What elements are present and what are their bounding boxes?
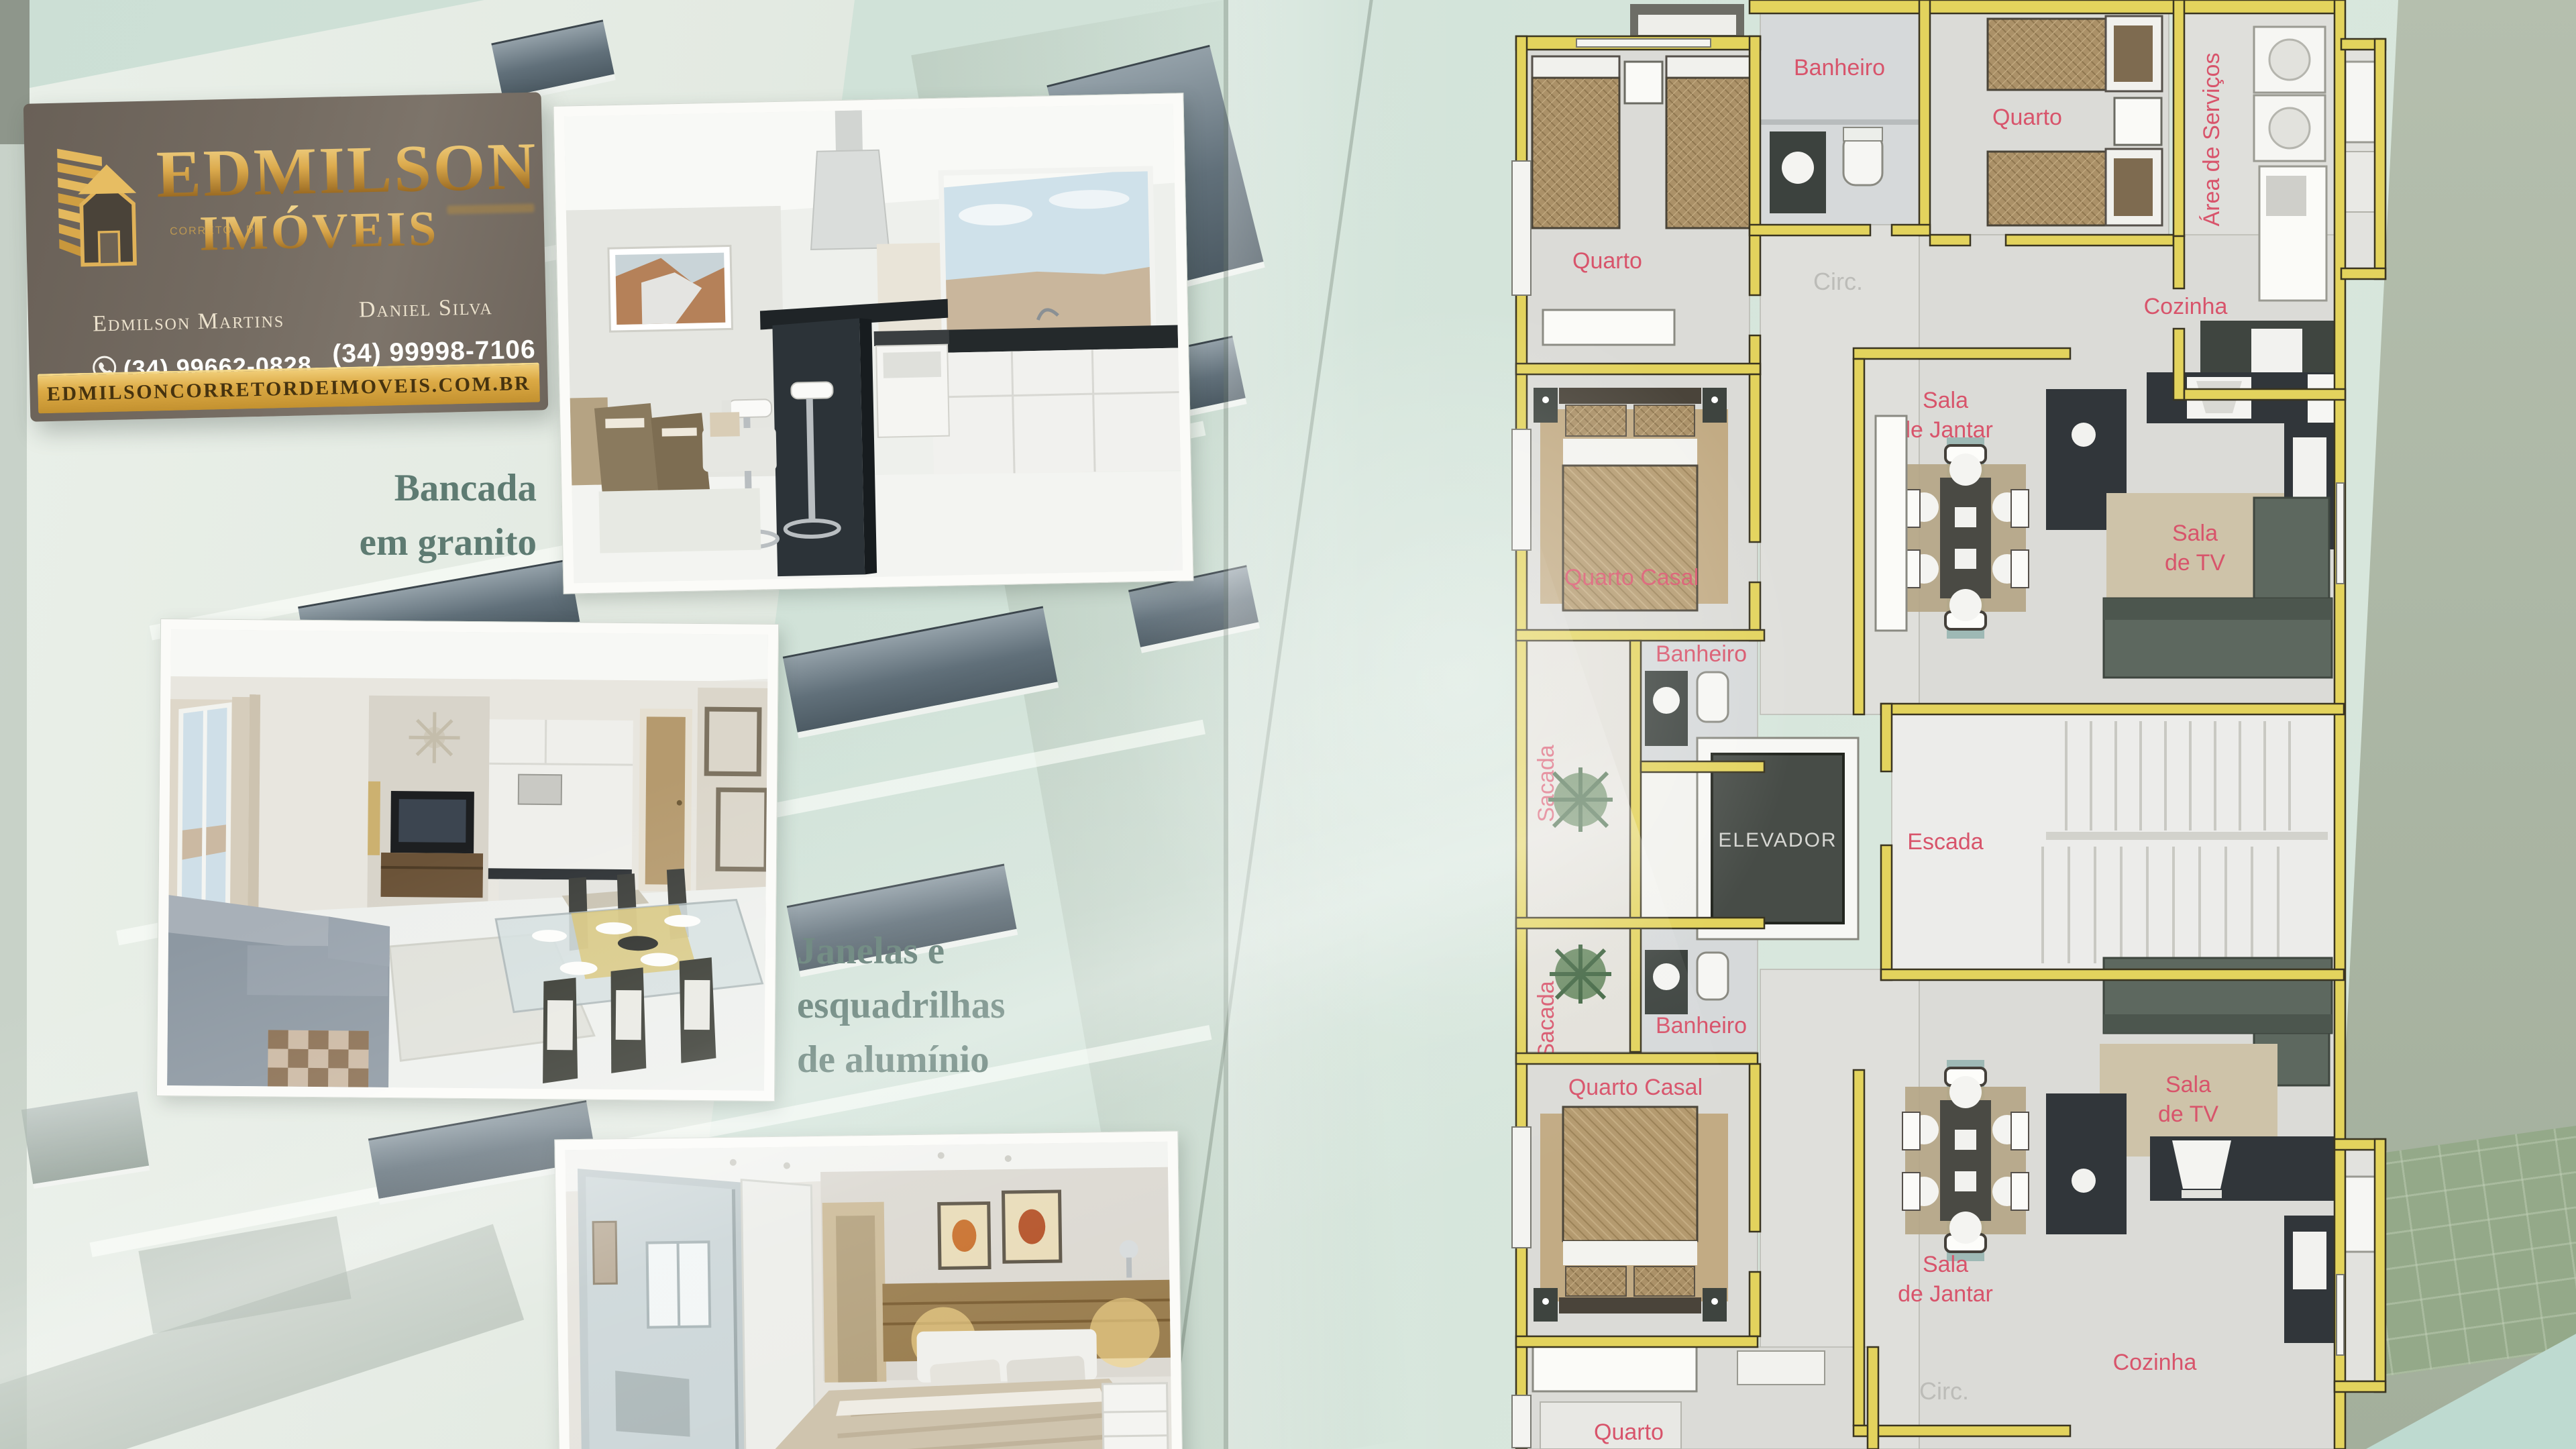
nightstand	[1625, 62, 1662, 103]
room-label: Quarto	[1572, 248, 1642, 274]
room-label: Sala	[1923, 1252, 1968, 1277]
single-bed	[1988, 149, 2162, 225]
kitchen-photo	[553, 93, 1193, 594]
room-label: Quarto	[1992, 105, 2062, 130]
caption-windows: Janelas e esquadrilhas de alumínio	[797, 924, 1106, 1087]
headboard	[1559, 388, 1701, 404]
page-fold	[1224, 0, 1228, 1449]
living-room-photo	[156, 619, 779, 1102]
agent1-name: Edmilson Martins	[71, 307, 307, 337]
stove	[874, 330, 951, 437]
master-bedroom-upper: Quarto Casal	[1534, 388, 1728, 610]
brand-name: EDMILSON	[156, 127, 539, 213]
room-label: Banheiro	[1794, 55, 1885, 80]
room-label: Sacada	[1534, 981, 1559, 1058]
elevator-label: ELEVADOR	[1718, 829, 1837, 851]
room-label: de Jantar	[1898, 1281, 1993, 1307]
caption-granite-line2: em granito	[282, 516, 537, 570]
website-url: EDMILSONCORRETORDEIMOVEIS.COM.BR	[47, 372, 531, 406]
stairs-label: Escada	[1907, 829, 1983, 855]
room-label: Sala	[1923, 388, 1968, 413]
room-label: Área de Serviços	[2199, 53, 2224, 227]
kitchen-render	[564, 104, 1183, 584]
bedroom-render	[566, 1142, 1172, 1449]
floor-plan: Quarto Banheiro Quarto	[1476, 0, 2388, 1449]
logo-house	[77, 164, 138, 265]
sectional-sofa	[167, 895, 390, 1087]
room-label: Banheiro	[1656, 641, 1747, 667]
throw-blanket	[268, 1030, 369, 1087]
agent2-name: Daniel Silva	[315, 294, 537, 324]
single-bed	[1988, 16, 2162, 91]
business-card: EDMILSON CORRETOR DE IMÓVEIS Edmilson Ma…	[23, 92, 549, 421]
sofa-chaise	[2254, 498, 2329, 613]
room-label: de TV	[2165, 550, 2225, 576]
fine-print-smudge	[447, 204, 534, 215]
caption-windows-line2: esquadrilhas	[797, 979, 1106, 1033]
brochure-photo: EDMILSON CORRETOR DE IMÓVEIS Edmilson Ma…	[0, 0, 2576, 1449]
single-bed	[1666, 56, 1754, 228]
hall-door	[639, 708, 692, 892]
room-label: Quarto Casal	[1564, 565, 1699, 590]
cabinet	[1876, 416, 1907, 631]
single-bed	[1532, 56, 1619, 228]
room-label: de TV	[2158, 1102, 2218, 1127]
plant	[1550, 945, 1611, 1004]
circulation-label: Circ.	[1919, 1377, 1969, 1405]
caption-windows-line1: Janelas e	[797, 924, 1106, 979]
room-label: Cozinha	[2113, 1350, 2197, 1375]
brand-name-2: IMÓVEIS	[199, 201, 439, 263]
room-label: Quarto Casal	[1568, 1075, 1703, 1100]
dresser	[1543, 310, 1674, 345]
nightstand	[2114, 98, 2161, 145]
tv-room-upper: Sala de TV	[2104, 493, 2332, 678]
wall-art	[608, 246, 733, 331]
room-label: Sacada	[1534, 745, 1559, 822]
edmilson-logo	[52, 131, 163, 282]
headboard	[1559, 1297, 1701, 1313]
mirror-wardrobe	[578, 1167, 745, 1449]
room-label: Quarto	[1594, 1419, 1664, 1445]
kitchen-counter	[917, 307, 1181, 476]
kitchen-background	[488, 719, 633, 920]
sliding-door	[741, 1179, 815, 1449]
living-room-render	[167, 629, 768, 1091]
page-left-edge	[0, 0, 27, 1449]
bedroom-photo	[554, 1131, 1183, 1449]
caption-granite: Bancada em granito	[282, 462, 537, 570]
nightstand	[1103, 1383, 1169, 1449]
tv-area	[367, 696, 490, 925]
room-label: Banheiro	[1656, 1013, 1747, 1038]
caption-granite-line1: Bancada	[282, 462, 537, 516]
room-label: de Jantar	[1898, 417, 1993, 443]
room-label: Sala	[2172, 521, 2218, 546]
circulation-label: Circ.	[1813, 268, 1863, 295]
plant	[1548, 767, 1613, 832]
room-label: Cozinha	[2144, 294, 2228, 319]
caption-windows-line3: de alumínio	[797, 1033, 1106, 1087]
page-fold-sheen	[1228, 0, 1470, 1449]
doorway	[822, 1202, 887, 1383]
room-label: Sala	[2165, 1072, 2211, 1097]
building-window	[783, 606, 1059, 738]
